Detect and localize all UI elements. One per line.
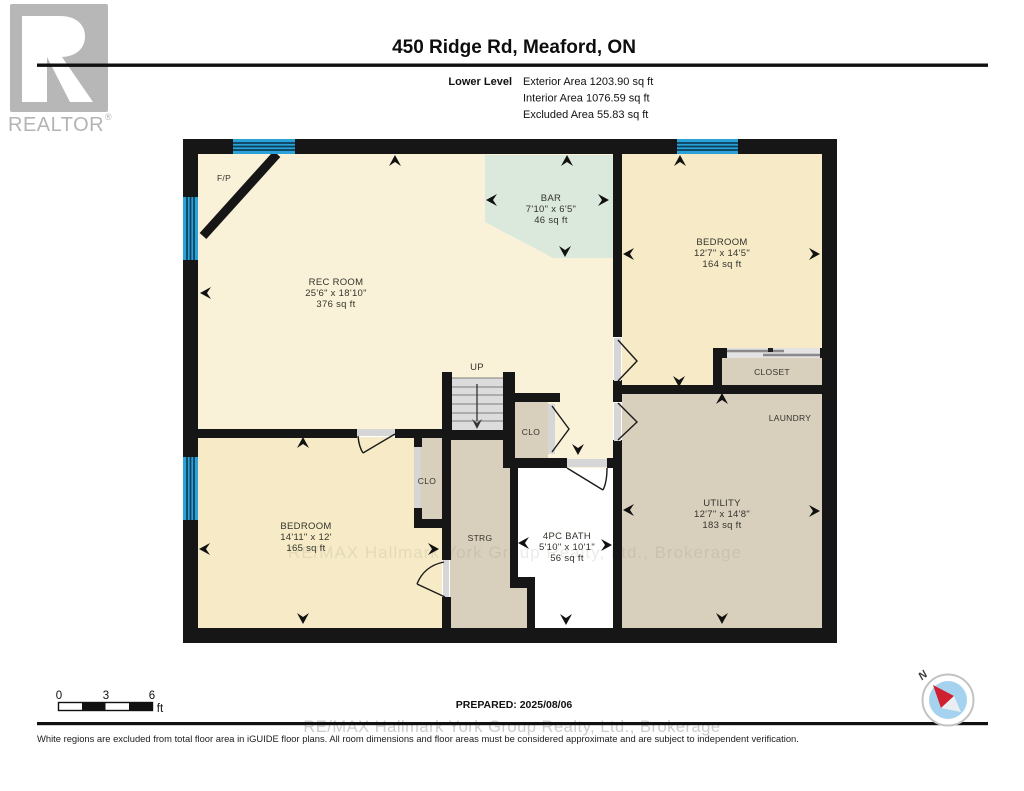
wall-center-vertical-lower (613, 440, 622, 628)
utility-area: 183 sq ft (702, 520, 741, 531)
exterior-area: Exterior Area 1203.90 sq ft (523, 76, 653, 88)
wall-bath-top-right (607, 458, 622, 468)
window-rec-room-top (233, 139, 295, 154)
closet-label: CLOSET (754, 367, 790, 377)
floorplan-page: REALTOR ® 450 Ridge Rd, Meaford, ON Lowe… (0, 0, 1024, 791)
wall-outer-bottom (183, 628, 837, 643)
rec-room-dims: 25'6" x 18'10" (305, 288, 367, 299)
compass-icon: N (916, 668, 973, 726)
area-summary: Lower Level Exterior Area 1203.90 sq ft … (448, 76, 653, 121)
footer-divider (37, 722, 988, 725)
utility-dims: 12'7" x 14'8" (694, 509, 750, 520)
scale-unit: ft (157, 703, 164, 715)
bedroom-upper-area: 164 sq ft (702, 259, 741, 270)
scale-bar: 0 3 6 ft (56, 690, 164, 715)
wall-bedroom-lower-top-right (395, 429, 442, 438)
scale-tick-3: 3 (103, 690, 109, 702)
scale-tick-6: 6 (149, 690, 155, 702)
level-label: Lower Level (448, 76, 512, 88)
window-rec-room-left (183, 197, 198, 260)
floorplan-canvas: REALTOR ® 450 Ridge Rd, Meaford, ON Lowe… (0, 0, 1024, 791)
header-divider (37, 64, 988, 67)
bath-name: 4PC BATH (543, 531, 591, 542)
rec-room-name: REC ROOM (309, 277, 364, 288)
scale-bar-segment (82, 703, 106, 711)
realtor-logo-text: REALTOR (8, 114, 104, 136)
bath-dims: 5'10" x 10'1" (539, 542, 595, 553)
realtor-logo: REALTOR ® (8, 4, 112, 136)
wall-clo-hall-top (503, 393, 560, 402)
excluded-area: Excluded Area 55.83 sq ft (523, 109, 648, 121)
interior-area: Interior Area 1076.59 sq ft (523, 93, 650, 105)
bedroom-lower-name: BEDROOM (280, 521, 331, 532)
bar-dims: 7'10" x 6'5" (526, 204, 576, 215)
disclaimer-text: White regions are excluded from total fl… (37, 733, 799, 744)
laundry-label: LAUNDRY (769, 413, 812, 423)
wall-center-vertical-upper (613, 154, 622, 337)
wall-stairs-bottom (442, 430, 515, 440)
bedroom-lower-area: 165 sq ft (286, 543, 325, 554)
wall-bath-left-lower (527, 588, 535, 628)
scale-bar-segment (129, 703, 153, 711)
door-closet-slider (727, 348, 820, 358)
bedroom-lower-dims: 14'11" x 12' (280, 532, 332, 543)
wall-bath-left (510, 458, 518, 577)
room-storage-notch (510, 588, 527, 628)
clo-bedroom-label: CLO (418, 476, 436, 486)
rec-room-area: 376 sq ft (316, 299, 355, 310)
utility-name: UTILITY (703, 498, 741, 509)
wall-stairs-right (503, 372, 515, 458)
page-title: 450 Ridge Rd, Meaford, ON (392, 37, 636, 58)
registered-mark: ® (105, 112, 112, 122)
window-bedroom-upper-top (677, 139, 738, 154)
wall-bath-left-jog (510, 577, 535, 588)
bath-area: 56 sq ft (550, 553, 584, 564)
wall-clo-bedroom-stub-top (414, 437, 422, 447)
wall-storage-left-upper (442, 429, 451, 560)
fireplace-label: F/P (217, 173, 231, 183)
wall-stairs-left (442, 372, 452, 430)
wall-storage-left-lower (442, 597, 451, 628)
wall-bedroom-laundry (613, 385, 822, 394)
scale-tick-0: 0 (56, 690, 62, 702)
storage-label: STRG (468, 533, 493, 543)
wall-bedroom-lower-top-left (198, 429, 357, 438)
prepared-date: PREPARED: 2025/08/06 (456, 699, 573, 711)
stairs-up-label: UP (470, 362, 484, 373)
wall-outer-right (822, 139, 837, 643)
wall-clo-bedroom-bottom (414, 519, 442, 528)
bedroom-upper-name: BEDROOM (696, 237, 747, 248)
clo-hall-label: CLO (522, 427, 540, 437)
bar-area: 46 sq ft (534, 215, 568, 226)
compass-north-label: N (916, 668, 931, 683)
wall-closet-left (713, 348, 722, 385)
window-bedroom-lower-left (183, 457, 198, 520)
bedroom-upper-dims: 12'7" x 14'5" (694, 248, 750, 259)
stairs (452, 378, 503, 430)
bar-name: BAR (541, 193, 561, 204)
